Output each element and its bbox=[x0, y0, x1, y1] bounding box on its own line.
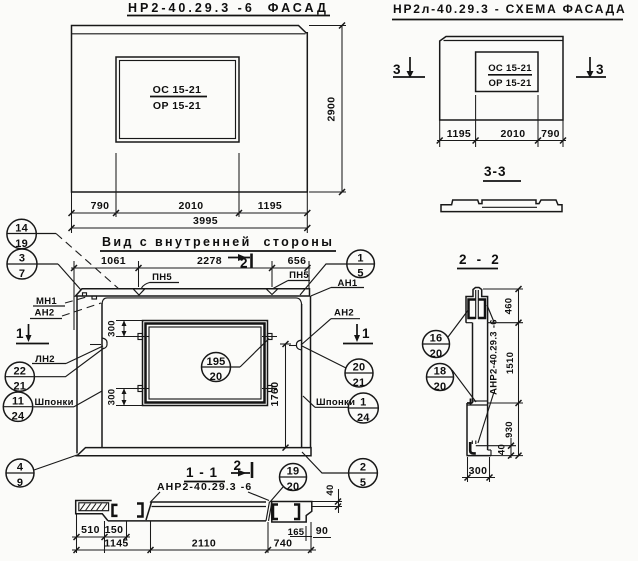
svg-text:2110: 2110 bbox=[192, 538, 216, 550]
svg-text:4: 4 bbox=[17, 462, 24, 474]
svg-text:740: 740 bbox=[274, 538, 293, 550]
svg-text:2: 2 bbox=[360, 462, 366, 474]
svg-text:16: 16 bbox=[430, 333, 443, 345]
svg-text:ПН5: ПН5 bbox=[289, 270, 309, 281]
svg-text:930: 930 bbox=[504, 421, 515, 438]
svg-text:АНР2-40.29.3 -6: АНР2-40.29.3 -6 bbox=[489, 319, 500, 395]
svg-text:7: 7 bbox=[19, 268, 25, 280]
svg-text:1195: 1195 bbox=[447, 128, 471, 140]
svg-text:2 - 2: 2 - 2 bbox=[459, 252, 502, 267]
svg-text:ОР 15-21: ОР 15-21 bbox=[153, 100, 201, 112]
svg-text:3: 3 bbox=[596, 62, 605, 77]
svg-text:1195: 1195 bbox=[258, 200, 282, 212]
svg-text:1: 1 bbox=[362, 326, 371, 341]
svg-text:20: 20 bbox=[210, 371, 223, 383]
svg-text:20: 20 bbox=[353, 362, 366, 374]
svg-text:АНР2-40.29.3 -6: АНР2-40.29.3 -6 bbox=[157, 481, 252, 493]
svg-text:656: 656 bbox=[288, 255, 307, 267]
svg-text:1: 1 bbox=[360, 397, 366, 409]
svg-text:300: 300 bbox=[107, 389, 118, 406]
svg-text:1145: 1145 bbox=[104, 538, 128, 550]
svg-text:40: 40 bbox=[325, 484, 336, 495]
svg-text:9: 9 bbox=[17, 477, 23, 489]
svg-text:ОР 15-21: ОР 15-21 bbox=[488, 78, 531, 89]
svg-text:20: 20 bbox=[434, 381, 447, 393]
svg-text:3: 3 bbox=[19, 253, 25, 265]
svg-text:2: 2 bbox=[234, 458, 243, 473]
svg-text:АН2: АН2 bbox=[35, 308, 55, 319]
svg-text:300: 300 bbox=[107, 320, 118, 337]
svg-text:5: 5 bbox=[360, 477, 366, 489]
svg-text:460: 460 bbox=[504, 298, 515, 315]
svg-text:1: 1 bbox=[16, 326, 25, 341]
svg-text:1510: 1510 bbox=[505, 352, 516, 374]
svg-text:21: 21 bbox=[353, 377, 366, 389]
svg-text:1: 1 bbox=[357, 252, 363, 264]
svg-text:АН2: АН2 bbox=[334, 308, 354, 319]
svg-text:40: 40 bbox=[497, 444, 508, 455]
svg-text:24: 24 bbox=[12, 411, 25, 423]
svg-text:150: 150 bbox=[105, 524, 124, 536]
svg-text:790: 790 bbox=[541, 128, 560, 140]
svg-text:ОС 15-21: ОС 15-21 bbox=[488, 63, 532, 74]
svg-text:МН1: МН1 bbox=[36, 296, 57, 307]
svg-text:11: 11 bbox=[12, 395, 24, 407]
svg-text:1 - 1: 1 - 1 bbox=[186, 465, 218, 480]
svg-text:НР2-40.29.3 -6 ФАСАД: НР2-40.29.3 -6 ФАСАД bbox=[128, 1, 329, 15]
svg-text:14: 14 bbox=[15, 223, 28, 235]
svg-text:790: 790 bbox=[91, 200, 110, 212]
svg-text:300: 300 bbox=[469, 465, 488, 477]
svg-text:НР2л-40.29.3 - СХЕМА ФАСАДА: НР2л-40.29.3 - СХЕМА ФАСАДА bbox=[393, 2, 626, 16]
svg-text:ОС 15-21: ОС 15-21 bbox=[153, 84, 202, 96]
svg-text:19: 19 bbox=[287, 466, 300, 478]
svg-text:1061: 1061 bbox=[101, 255, 126, 267]
svg-text:2900: 2900 bbox=[326, 97, 338, 122]
svg-text:20: 20 bbox=[287, 481, 300, 493]
svg-text:Вид с внутренней стороны: Вид с внутренней стороны bbox=[102, 235, 334, 249]
svg-text:3-3: 3-3 bbox=[484, 164, 507, 179]
svg-text:510: 510 bbox=[81, 524, 100, 536]
svg-text:1760: 1760 bbox=[269, 382, 281, 407]
svg-text:3: 3 bbox=[393, 62, 402, 77]
svg-text:22: 22 bbox=[13, 365, 26, 377]
svg-text:5: 5 bbox=[357, 268, 363, 280]
svg-text:ПН5: ПН5 bbox=[152, 272, 172, 283]
svg-text:21: 21 bbox=[13, 381, 26, 393]
svg-text:18: 18 bbox=[434, 366, 447, 378]
svg-text:24: 24 bbox=[357, 412, 370, 424]
svg-text:2010: 2010 bbox=[179, 200, 204, 212]
svg-text:3995: 3995 bbox=[193, 215, 218, 227]
svg-text:2: 2 bbox=[240, 256, 249, 271]
svg-text:2010: 2010 bbox=[501, 128, 526, 140]
svg-text:2278: 2278 bbox=[197, 255, 222, 267]
svg-text:20: 20 bbox=[430, 348, 443, 360]
svg-text:195: 195 bbox=[207, 356, 226, 368]
svg-text:90: 90 bbox=[316, 525, 328, 537]
svg-text:19: 19 bbox=[15, 238, 28, 250]
